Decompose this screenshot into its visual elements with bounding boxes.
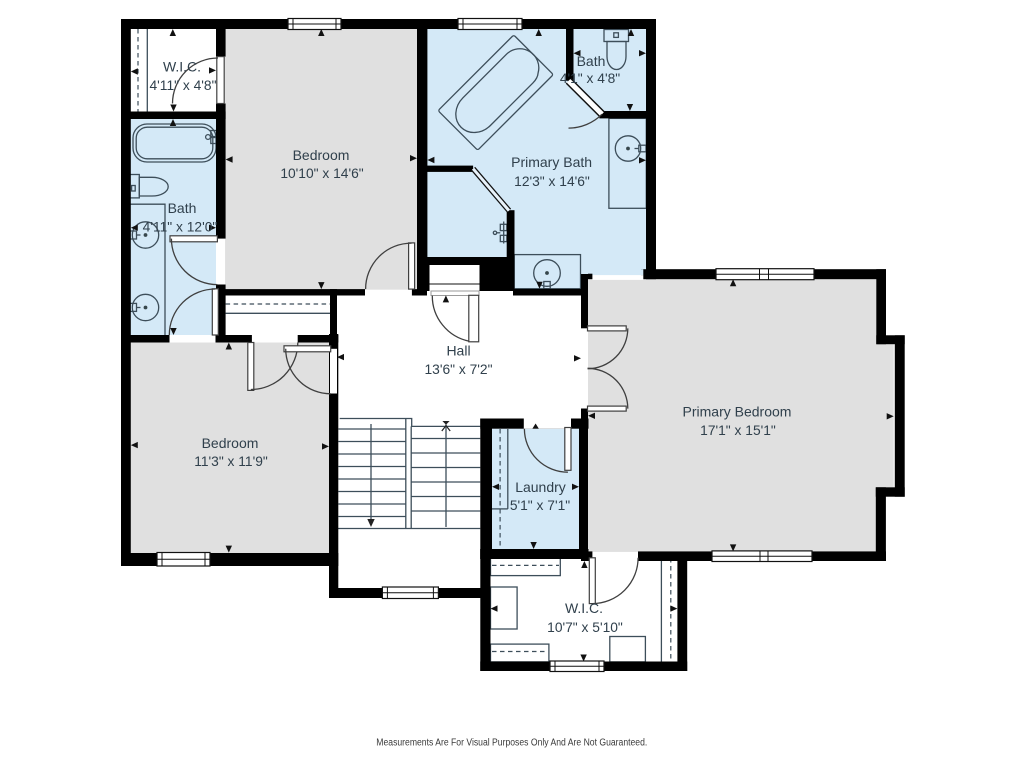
svg-text:W.I.C.: W.I.C.	[163, 58, 201, 74]
svg-text:Measurements Are For Visual Pu: Measurements Are For Visual Purposes Onl…	[376, 738, 647, 749]
svg-text:11'3" x 11'9": 11'3" x 11'9"	[194, 454, 268, 469]
svg-text:13'6" x 7'2": 13'6" x 7'2"	[425, 362, 493, 377]
svg-text:Bath: Bath	[577, 53, 606, 69]
svg-text:Hall: Hall	[446, 343, 470, 359]
svg-text:Bath: Bath	[168, 200, 197, 216]
svg-text:12'3" x 14'6": 12'3" x 14'6"	[514, 174, 590, 189]
svg-text:Laundry: Laundry	[515, 479, 566, 495]
svg-text:17'1" x 15'1": 17'1" x 15'1"	[700, 423, 776, 438]
svg-text:4'11" x 12'0": 4'11" x 12'0"	[143, 220, 218, 235]
svg-text:10'7" x 5'10": 10'7" x 5'10"	[547, 620, 623, 635]
svg-text:Primary Bedroom: Primary Bedroom	[683, 403, 792, 419]
svg-text:4'1" x 4'8": 4'1" x 4'8"	[560, 71, 620, 86]
svg-text:Bedroom: Bedroom	[202, 435, 259, 451]
svg-text:Primary Bath: Primary Bath	[511, 154, 592, 170]
svg-text:5'1" x 7'1": 5'1" x 7'1"	[510, 498, 570, 513]
svg-text:10'10" x 14'6": 10'10" x 14'6"	[280, 166, 363, 181]
svg-text:4'11" x 4'8": 4'11" x 4'8"	[150, 78, 217, 93]
svg-text:Bedroom: Bedroom	[293, 147, 350, 163]
svg-text:W.I.C.: W.I.C.	[565, 600, 603, 616]
